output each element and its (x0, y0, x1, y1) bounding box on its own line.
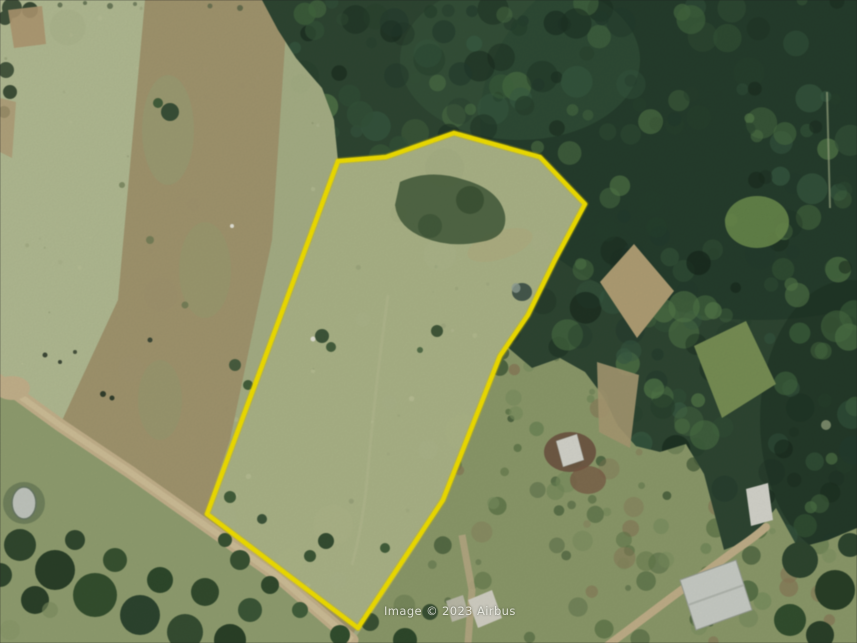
satellite-map-image: Image © 2023 Airbus (0, 0, 857, 643)
satellite-terrain (0, 0, 857, 643)
photo-grain-overlay (0, 0, 857, 643)
